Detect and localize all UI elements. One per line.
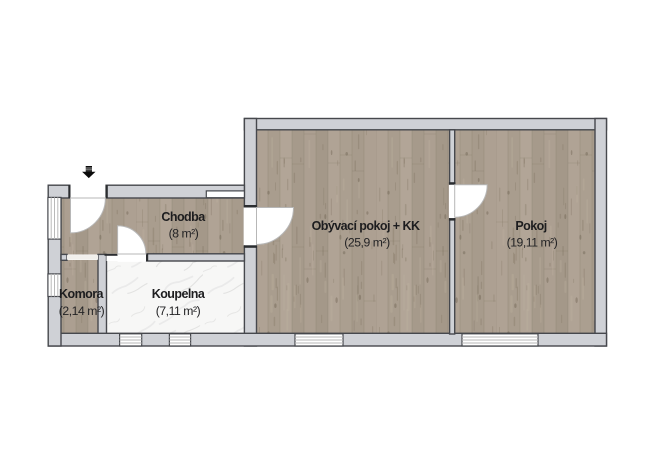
svg-text:(8 m²): (8 m²) bbox=[169, 226, 199, 240]
svg-text:Chodba: Chodba bbox=[161, 210, 206, 224]
svg-text:Koupelna: Koupelna bbox=[152, 287, 206, 301]
svg-text:Komora: Komora bbox=[59, 287, 105, 301]
svg-text:(19,11 m²): (19,11 m²) bbox=[507, 235, 558, 249]
svg-text:(2,14 m²): (2,14 m²) bbox=[59, 304, 105, 318]
svg-text:(25,9 m²): (25,9 m²) bbox=[344, 235, 390, 249]
svg-text:(7,11 m²): (7,11 m²) bbox=[156, 304, 201, 318]
svg-text:Obývací pokoj + KK: Obývací pokoj + KK bbox=[312, 219, 420, 233]
svg-text:Pokoj: Pokoj bbox=[515, 219, 546, 233]
